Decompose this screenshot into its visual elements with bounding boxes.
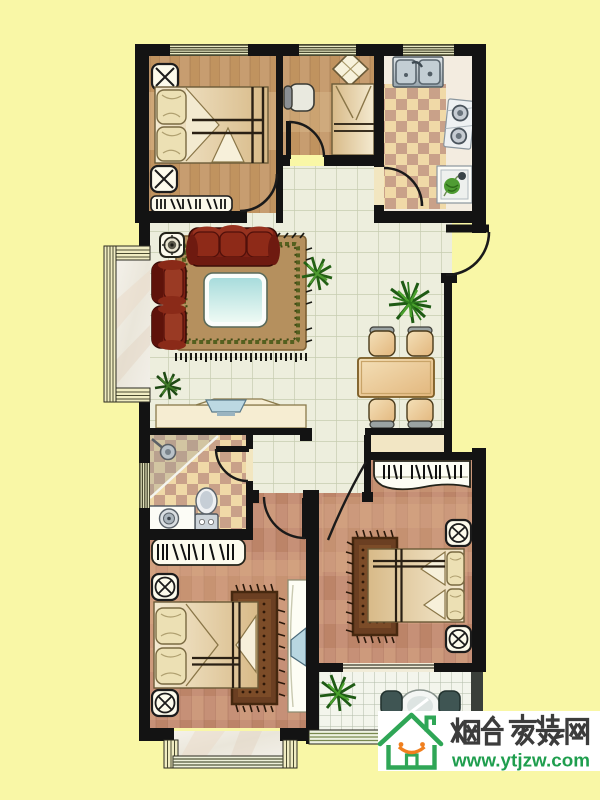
svg-text:www.ytjzw.com: www.ytjzw.com (451, 750, 590, 771)
